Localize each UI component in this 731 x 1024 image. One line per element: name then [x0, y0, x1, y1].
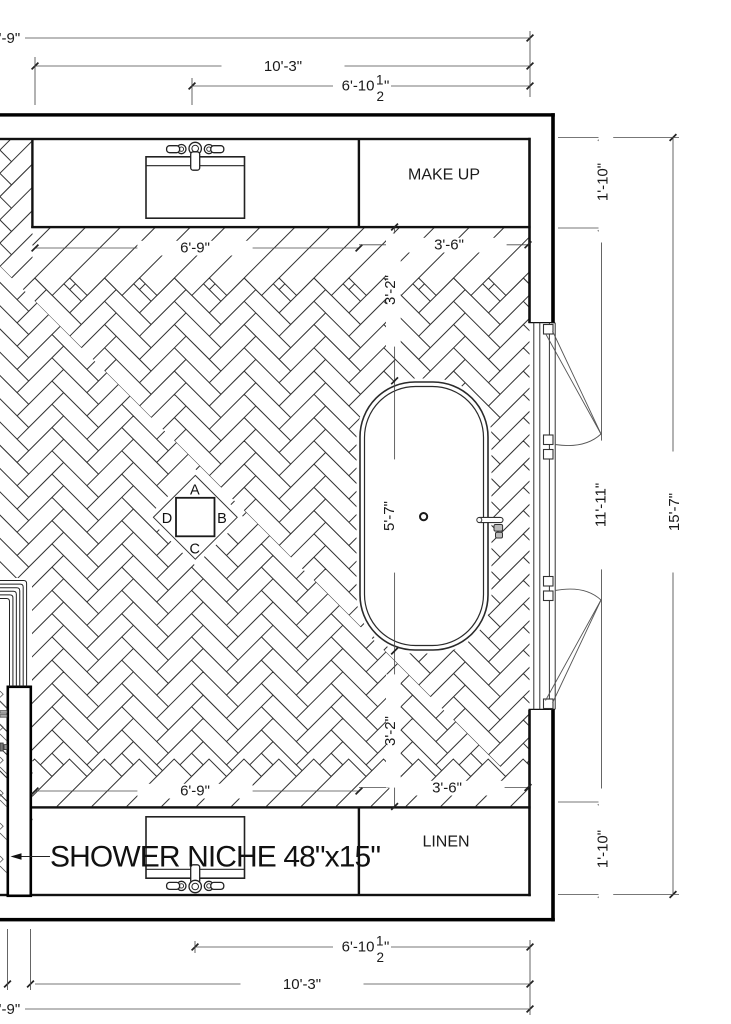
svg-text:15'-9": 15'-9"	[0, 1001, 20, 1018]
svg-text:3'-6": 3'-6"	[432, 780, 462, 797]
svg-text:1'-10": 1'-10"	[595, 163, 612, 201]
svg-text:": "	[384, 939, 389, 956]
svg-text:2: 2	[376, 950, 384, 965]
svg-text:11'-11": 11'-11"	[593, 483, 610, 527]
svg-text:": "	[384, 78, 389, 95]
svg-text:6'-10: 6'-10	[342, 939, 375, 956]
svg-text:15'-7": 15'-7"	[666, 493, 683, 531]
svg-text:1: 1	[376, 934, 384, 949]
svg-text:1: 1	[376, 73, 384, 88]
svg-text:MAKE UP: MAKE UP	[408, 167, 480, 184]
svg-text:D: D	[162, 511, 172, 527]
svg-text:B: B	[217, 511, 227, 527]
svg-text:6'-9": 6'-9"	[180, 783, 210, 800]
svg-text:3'-6": 3'-6"	[434, 237, 464, 254]
svg-text:1'-10": 1'-10"	[595, 830, 612, 868]
svg-text:6'-10: 6'-10	[342, 78, 375, 95]
svg-text:SHOWER NICHE 48"x15": SHOWER NICHE 48"x15"	[50, 841, 381, 874]
svg-text:LINEN: LINEN	[422, 834, 469, 851]
svg-text:C: C	[190, 542, 200, 558]
svg-text:10'-3": 10'-3"	[283, 976, 321, 993]
svg-text:2: 2	[376, 89, 384, 104]
svg-text:3'-2": 3'-2"	[382, 275, 399, 305]
svg-text:10'-3": 10'-3"	[264, 58, 302, 75]
svg-text:6'-9": 6'-9"	[180, 240, 210, 257]
svg-text:15'-9": 15'-9"	[0, 30, 20, 47]
svg-text:A: A	[190, 483, 200, 499]
svg-text:3'-2": 3'-2"	[382, 716, 399, 746]
svg-text:5'-7": 5'-7"	[381, 501, 398, 531]
